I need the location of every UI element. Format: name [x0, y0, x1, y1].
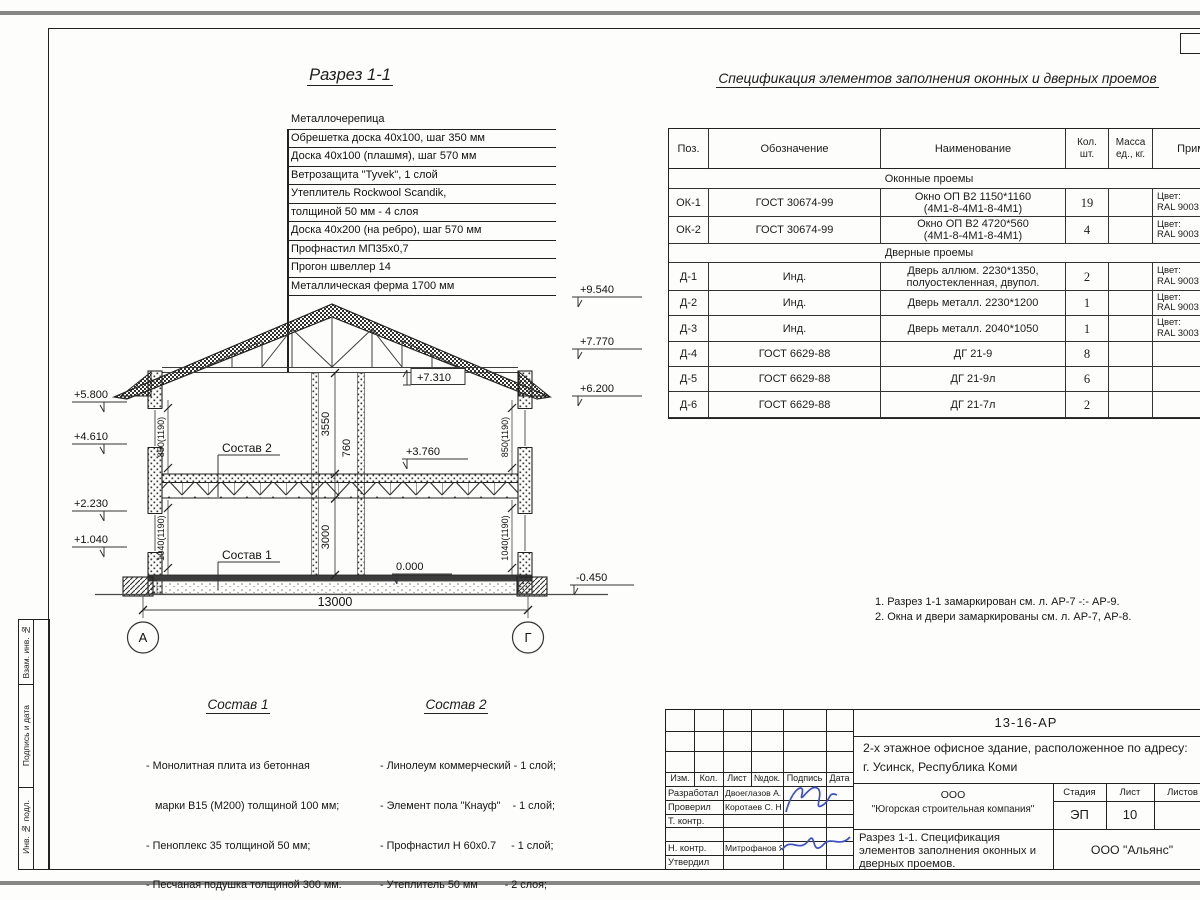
sostav2-line: - Элемент пола "Кнауф" - 1 слой; — [380, 800, 557, 813]
spec-note-line1: Цвет: — [1157, 318, 1181, 329]
spec-cell-qty: 1 — [1066, 316, 1109, 342]
sostav2-list: - Линолеум коммерческий - 1 слой; - Элем… — [380, 734, 557, 900]
roof-callout-item: Обрешетка доска 40х100, шаг 350 мм — [288, 130, 556, 149]
spec-header-pos: Поз. — [669, 129, 709, 169]
dim-window-upper-right: 850(1190) — [500, 417, 510, 457]
spec-cell-qty: 4 — [1066, 217, 1109, 244]
spec-cell-pos: Д-5 — [669, 367, 709, 392]
tb-col-izm: Изм. — [666, 773, 694, 783]
elevation-mark: +2.230 — [74, 498, 108, 510]
spec-cell-designation: ГОСТ 6629-88 — [709, 342, 881, 367]
spec-cell-note: Цвет: RAL 9003 — [1153, 217, 1200, 244]
spec-header-qty-line2: шт. — [1080, 149, 1094, 161]
spec-cell-qty: 1 — [1066, 291, 1109, 316]
foundation-block-right — [517, 577, 547, 596]
foundation-block-left — [123, 577, 153, 596]
roof-callout-item: Доска 40х100 (плашмя), шаг 570 мм — [288, 148, 556, 167]
spec-cell-mass — [1109, 316, 1153, 342]
spec-cell-name: Окно ОП В2 4720*560 (4М1-8-4М1-8-4М1) — [881, 217, 1066, 244]
sostav1-title: Состав 1 — [183, 697, 293, 712]
spec-cell-name: Окно ОП В2 1150*1160 (4М1-8-4М1-8-4М1) — [881, 189, 1066, 217]
axis-label-a: А — [139, 630, 148, 645]
margin-stamp-strip: Взам. инв. № Подпись и дата Инв. № подл. — [18, 619, 50, 870]
margin-strip-divider — [33, 620, 34, 869]
title-block: Изм. Кол. Лист №док. Подпись Дата Разраб… — [665, 709, 1200, 870]
spec-header-designation: Обозначение — [709, 129, 881, 169]
elevation-mark: +4.610 — [74, 431, 108, 443]
spec-cell-designation: ГОСТ 6629-88 — [709, 392, 881, 418]
tb-role: Н. контр. — [668, 843, 722, 853]
spec-cell-note — [1153, 392, 1200, 418]
spec-cell-designation: Инд. — [709, 316, 881, 342]
dim-window-lower-left: 1040(1190) — [156, 515, 166, 560]
spec-header-qty: Кол. шт. — [1066, 129, 1109, 169]
spec-cell-designation: ГОСТ 30674-99 — [709, 217, 881, 244]
tb-project-line1: 2-х этажное офисное здание, расположенно… — [863, 741, 1200, 755]
spec-cell-qty: 2 — [1066, 263, 1109, 291]
tb-role-name: Двоеглазов А. В. — [725, 788, 782, 798]
spec-cell-mass — [1109, 189, 1153, 217]
spec-cell-note: Цвет: RAL 9003 — [1153, 291, 1200, 316]
spec-header-mass-line2: ед., кг. — [1116, 149, 1145, 161]
spec-cell-designation: ГОСТ 30674-99 — [709, 189, 881, 217]
spec-name-line1: Окно ОП В2 4720*560 — [917, 218, 1029, 230]
spec-note-line1: Цвет: — [1157, 192, 1181, 203]
spec-cell-note: Цвет: RAL 9003 — [1153, 263, 1200, 291]
elevation-mark: +3.760 — [406, 446, 440, 458]
spec-cell-mass — [1109, 263, 1153, 291]
note-line: 2. Окна и двери замаркированы см. л. АР-… — [875, 610, 1131, 625]
spec-cell-note — [1153, 342, 1200, 367]
tb-project-line2: г. Усинск, Республика Коми — [863, 760, 1200, 774]
spec-section-windows: Оконные проемы — [669, 169, 1200, 189]
sostav-references: Состав 2 Состав 1 — [218, 441, 280, 590]
tb-line — [723, 710, 724, 869]
margin-cell-podpis: Подпись и дата — [19, 685, 33, 788]
elevation-mark: +1.040 — [74, 534, 108, 546]
floor-screed-band — [162, 474, 518, 483]
spec-cell-mass — [1109, 217, 1153, 244]
exterior-wall-right — [517, 371, 533, 594]
margin-label-vzam: Взам. инв. № — [21, 625, 31, 679]
tb-line — [1053, 801, 1200, 802]
tb-role: Утвердил — [668, 857, 722, 867]
roof-callout-item: Доска 40х200 (на ребро), шаг 570 мм — [288, 222, 556, 241]
spec-cell-mass — [1109, 291, 1153, 316]
elevation-mark: +5.800 — [74, 389, 108, 401]
spec-cell-note: Цвет: RAL 3003 — [1153, 316, 1200, 342]
drawing-sheet: { "margin_labels": ["Взам. инв. №", "Под… — [0, 0, 1200, 900]
margin-label-podpis: Подпись и дата — [21, 705, 31, 766]
spec-name-line2: полуостекленная, двупол. — [907, 277, 1040, 289]
axis-label-g: Г — [524, 630, 531, 645]
tb-line — [666, 751, 853, 752]
tb-company-line1: ООО — [853, 789, 1053, 801]
spec-cell-name: ДГ 21-9л — [881, 367, 1066, 392]
tb-role: Разработал — [668, 788, 722, 798]
spec-header-mass: Масса ед., кг. — [1109, 129, 1153, 169]
spec-cell-pos: Д-2 — [669, 291, 709, 316]
elevation-mark: +6.200 — [580, 383, 614, 395]
dim-window-lower-right: 1040(1190) — [500, 515, 510, 560]
tb-line — [853, 783, 1200, 784]
spec-note-line2: RAL 9003 — [1157, 303, 1199, 314]
tb-sheet-label: Лист — [1106, 787, 1154, 798]
elevation-mark: +7.770 — [580, 336, 614, 348]
dim-window-upper-left: 850(1190) — [156, 417, 166, 457]
spec-cell-designation: ГОСТ 6629-88 — [709, 367, 881, 392]
spec-note-line2: RAL 9003 — [1157, 203, 1199, 214]
scan-edge-top — [0, 11, 1200, 15]
spec-cell-pos: ОК-1 — [669, 189, 709, 217]
elevation-mark: -0.450 — [576, 572, 607, 584]
dim-slab-thickness: 760 — [341, 439, 353, 457]
spec-table-title: Спецификация элементов заполнения оконны… — [700, 71, 1175, 86]
tb-line — [666, 731, 853, 732]
elevation-marks-right: +9.540 +7.770 +6.200 -0.450 — [570, 284, 642, 595]
axis-markers: А Г — [128, 622, 544, 653]
sostav1-line: - Пеноплекс 35 толщиной 50 мм; — [146, 840, 342, 853]
overall-width-dimension: 13000 — [139, 595, 532, 618]
spec-cell-name: Дверь аллюм. 2230*1350, полуостекленная,… — [881, 263, 1066, 291]
margin-cell-inv: Инв. № подл. — [19, 788, 33, 866]
tb-stage-label: Стадия — [1053, 787, 1106, 798]
spec-name-line1: Дверь аллюм. 2230*1350, — [907, 265, 1038, 277]
spec-cell-pos: Д-1 — [669, 263, 709, 291]
spec-note-line1: Цвет: — [1157, 266, 1181, 277]
tb-role: Проверил — [668, 802, 722, 812]
roof-callout-item: Утеплитель Rockwool Scandik, — [288, 185, 556, 204]
roof-callout-item: Прогон швеллер 14 — [288, 259, 556, 278]
elevation-mark: 0.000 — [396, 561, 424, 573]
spec-cell-designation: Инд. — [709, 291, 881, 316]
elevation-mark: +7.310 — [417, 372, 451, 384]
ground-slab — [148, 575, 532, 581]
roof-callout-list: Металлочерепица Обрешетка доска 40х100, … — [288, 111, 556, 296]
spec-cell-qty: 2 — [1066, 392, 1109, 418]
corner-stamp-box — [1180, 33, 1200, 54]
sostav2-line: - Профнастил Н 60х0.7 - 1 слой; — [380, 840, 557, 853]
spec-cell-name: Дверь металл. 2040*1050 — [881, 316, 1066, 342]
margin-label-inv: Инв. № подл. — [21, 800, 31, 854]
sostav1-ref-label: Состав 1 — [222, 548, 272, 562]
spec-name-line2: (4М1-8-4М1-8-4М1) — [924, 203, 1022, 215]
spec-cell-note — [1153, 367, 1200, 392]
signature-mark — [786, 788, 837, 812]
sostav1-line: марки В15 (М200) толщиной 100 мм; — [146, 800, 342, 813]
roof-callout-item: Ветрозащита "Tyvek", 1 слой — [288, 167, 556, 186]
spec-cell-note: Цвет: RAL 9003 — [1153, 189, 1200, 217]
sostav2-line: - Линолеум коммерческий - 1 слой; — [380, 760, 557, 773]
spec-cell-mass — [1109, 392, 1153, 418]
elevation-mark: +9.540 — [580, 284, 614, 296]
spec-table: Поз. Обозначение Наименование Кол. шт. М… — [668, 128, 1200, 419]
note-line: 1. Разрез 1-1 замаркирован см. л. АР-7 -… — [875, 595, 1131, 610]
spec-cell-qty: 8 — [1066, 342, 1109, 367]
spec-cell-pos: Д-6 — [669, 392, 709, 418]
sostav1-list: - Монолитная плита из бетонная марки В15… — [146, 734, 342, 900]
tb-contractor: ООО "Альянс" — [1053, 843, 1200, 857]
spec-header-qty-line1: Кол. — [1077, 137, 1097, 149]
spec-name-line1: Окно ОП В2 1150*1160 — [915, 191, 1031, 203]
sostav2-title: Состав 2 — [400, 697, 512, 712]
spec-section-doors: Дверные проемы — [669, 244, 1200, 263]
tb-role: Т. контр. — [668, 816, 722, 826]
spec-header-note: Прим. — [1153, 129, 1200, 169]
dim-floor1-height: 3000 — [320, 525, 332, 549]
floor-joist-band — [162, 483, 518, 499]
sostav2-line: - Утеплитель 50 мм - 2 слоя; — [380, 879, 557, 892]
spec-cell-pos: Д-3 — [669, 316, 709, 342]
tb-role-name: Коротаев С. Н. — [725, 802, 782, 812]
spec-note-line2: RAL 9003 — [1157, 230, 1199, 241]
tb-col-kol: Кол. — [694, 773, 723, 783]
drawing-notes: 1. Разрез 1-1 замаркирован см. л. АР-7 -… — [875, 595, 1131, 625]
roof-callout-item: Профнастил МП35х0,7 — [288, 241, 556, 260]
tb-line — [853, 736, 1200, 737]
gable-left — [121, 372, 151, 396]
sand-cushion — [157, 581, 519, 594]
spec-cell-pos: Д-4 — [669, 342, 709, 367]
spec-note-line2: RAL 9003 — [1157, 277, 1199, 288]
roof-callout-item: Металлочерепица — [288, 111, 556, 130]
spec-cell-qty: 6 — [1066, 367, 1109, 392]
tb-doc-number: 13-16-АР — [853, 715, 1199, 730]
tb-company-line2: "Югорская строительная компания" — [853, 804, 1053, 815]
spec-cell-designation: Инд. — [709, 263, 881, 291]
sostav1-line: - Монолитная плита из бетонная — [146, 760, 342, 773]
tb-col-list: Лист — [723, 773, 751, 783]
elevation-marks-left: +5.800 +4.610 +2.230 +1.040 — [72, 389, 127, 557]
building-section-drawing: 3550 760 3000 850(1190) 1040(1190) 850(1… — [60, 280, 660, 680]
spec-cell-qty: 19 — [1066, 189, 1109, 217]
tb-sheets-label: Листов — [1154, 787, 1200, 798]
signature-mark — [782, 837, 850, 850]
tb-title-line3: дверных проемов. — [859, 858, 1051, 870]
sostav1-line: - Песчаная подушка толщиной 300 мм. — [146, 879, 342, 892]
signatures — [778, 776, 858, 868]
spec-cell-mass — [1109, 367, 1153, 392]
spec-cell-mass — [1109, 342, 1153, 367]
spec-header-mass-line1: Масса — [1116, 137, 1146, 149]
spec-header-name: Наименование — [881, 129, 1066, 169]
spec-cell-name: Дверь металл. 2230*1200 — [881, 291, 1066, 316]
dim-overall-width: 13000 — [318, 595, 353, 609]
roof-callout-item: толщиной 50 мм - 4 слоя — [288, 204, 556, 223]
tb-title-line2: элементов заполнения оконных и — [859, 845, 1051, 857]
tb-stage-value: ЭП — [1053, 807, 1106, 822]
section-view-title: Разрез 1-1 — [280, 66, 420, 85]
tb-line — [853, 829, 1200, 830]
spec-cell-name: ДГ 21-9 — [881, 342, 1066, 367]
tb-title-line1: Разрез 1-1. Спецификация — [859, 832, 1051, 844]
dim-floor2-height: 3550 — [320, 412, 332, 436]
tb-sheet-value: 10 — [1106, 807, 1154, 822]
spec-note-line2: RAL 3003 — [1157, 329, 1199, 340]
spec-cell-name: ДГ 21-7л — [881, 392, 1066, 418]
tb-role-name: Митрофанов Я. А. — [725, 843, 782, 853]
spec-cell-pos: ОК-2 — [669, 217, 709, 244]
margin-cell-vzam: Взам. инв. № — [19, 620, 33, 685]
sostav2-ref-label: Состав 2 — [222, 441, 272, 455]
spec-name-line2: (4М1-8-4М1-8-4М1) — [924, 230, 1022, 242]
